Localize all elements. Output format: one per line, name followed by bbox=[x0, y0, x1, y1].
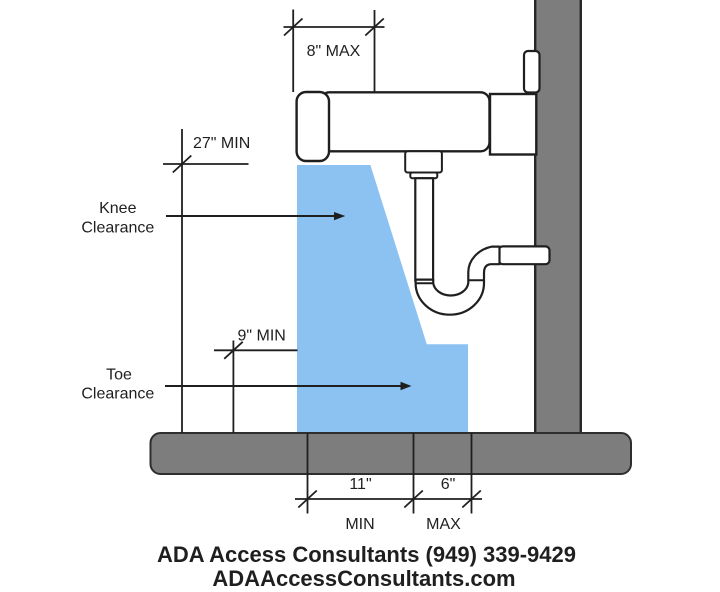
svg-text:11": 11" bbox=[349, 476, 371, 493]
svg-text:Clearance: Clearance bbox=[81, 220, 154, 237]
svg-text:6": 6" bbox=[441, 476, 456, 493]
svg-text:Toe: Toe bbox=[106, 367, 132, 384]
svg-text:MAX: MAX bbox=[426, 516, 461, 533]
svg-text:Clearance: Clearance bbox=[81, 386, 154, 403]
svg-text:27" MIN: 27" MIN bbox=[193, 135, 250, 152]
svg-text:MIN: MIN bbox=[345, 516, 374, 533]
svg-text:ADA Access Consultants (949) 3: ADA Access Consultants (949) 339-9429 bbox=[157, 542, 576, 567]
svg-text:ADAAccessConsultants.com: ADAAccessConsultants.com bbox=[212, 566, 515, 591]
svg-text:Knee: Knee bbox=[99, 200, 136, 217]
svg-text:8" MAX: 8" MAX bbox=[307, 43, 361, 60]
svg-text:9" MIN: 9" MIN bbox=[238, 328, 286, 345]
